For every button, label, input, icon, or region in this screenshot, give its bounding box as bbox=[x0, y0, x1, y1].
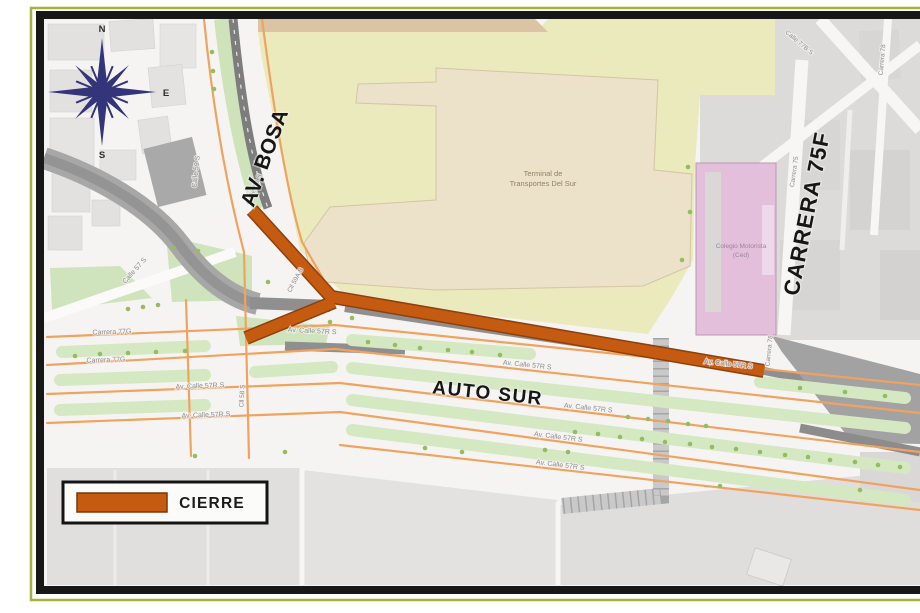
legend-closure-swatch bbox=[77, 493, 167, 512]
compass-south-label: S bbox=[99, 150, 105, 161]
school-label-line1: Colegio Motorista bbox=[716, 243, 767, 250]
street-label: Carrera 77G bbox=[92, 328, 131, 336]
legend: CIERRE bbox=[63, 482, 267, 523]
road-closure-map-page: Calle 59 S Calle 59 S Calle 57 S Cll 59A… bbox=[0, 0, 920, 613]
street-label: Cll 58 S bbox=[238, 384, 246, 408]
map-canvas: Calle 59 S Calle 59 S Calle 57 S Cll 59A… bbox=[0, 0, 920, 613]
compass-north-label: N bbox=[99, 24, 106, 35]
tan-strip bbox=[258, 19, 548, 32]
terminal-label-line2: Transportes Del Sur bbox=[510, 179, 577, 188]
map-content: Calle 59 S Calle 59 S Calle 57 S Cll 59A… bbox=[34, 19, 920, 587]
school-label-line2: (Ced) bbox=[733, 252, 749, 259]
street-label: Carrera 77G bbox=[86, 356, 125, 364]
terminal-label-line1: Terminal de bbox=[524, 169, 563, 178]
compass-east-label: E bbox=[163, 88, 169, 99]
legend-closure-label: CIERRE bbox=[179, 495, 245, 512]
